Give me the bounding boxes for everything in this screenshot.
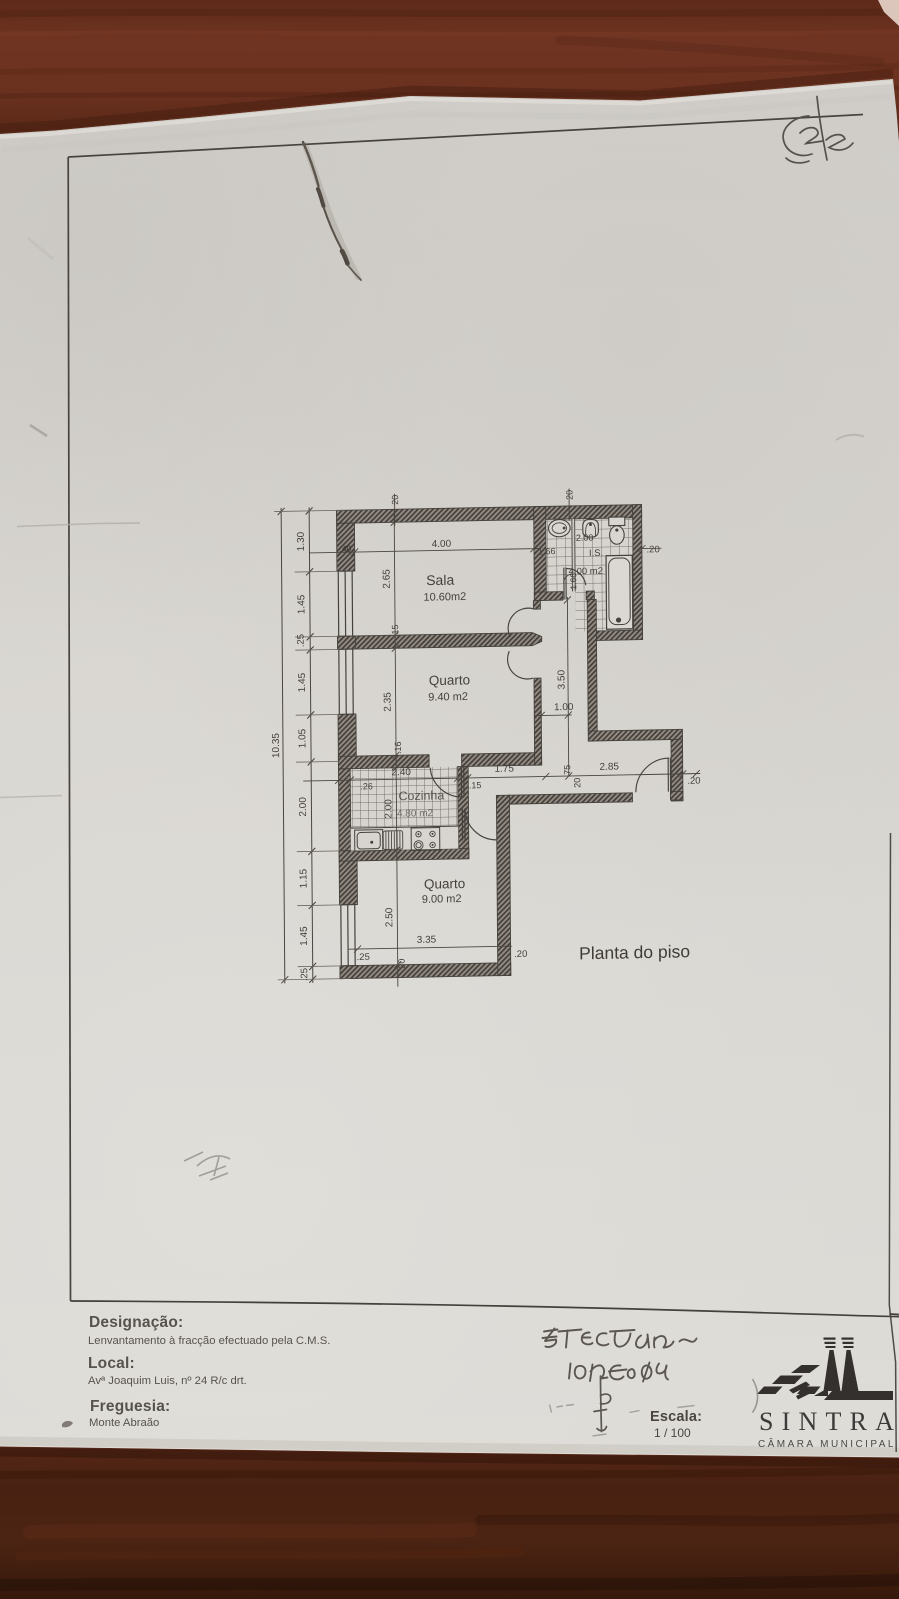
svg-text:.20: .20 <box>514 949 527 960</box>
svg-text:2.35: 2.35 <box>383 692 394 712</box>
svg-text:.20: .20 <box>646 544 659 555</box>
svg-text:I.S.: I.S. <box>589 548 603 559</box>
svg-text:.40: .40 <box>339 544 351 554</box>
svg-text:1.45: 1.45 <box>297 672 308 692</box>
svg-text:.75: .75 <box>562 765 572 778</box>
svg-text:4.80 m2: 4.80 m2 <box>397 808 434 820</box>
svg-text:3.35: 3.35 <box>417 935 437 946</box>
svg-text:9.00 m2: 9.00 m2 <box>422 893 462 906</box>
svg-text:SINTRA: SINTRA <box>759 1407 899 1436</box>
svg-text:2.00: 2.00 <box>576 533 594 543</box>
svg-text:Escala:: Escala: <box>650 1409 702 1425</box>
svg-text:.25: .25 <box>296 634 307 647</box>
svg-text:1.66: 1.66 <box>568 573 578 590</box>
svg-text:20: 20 <box>572 778 582 788</box>
svg-text:20: 20 <box>565 490 575 500</box>
svg-text:1.45: 1.45 <box>299 926 310 946</box>
svg-text:1.05: 1.05 <box>297 728 308 748</box>
svg-text:3.50: 3.50 <box>556 669 567 689</box>
svg-text:2.85: 2.85 <box>599 762 619 773</box>
svg-text:4.00: 4.00 <box>432 539 452 550</box>
svg-text:Designação:: Designação: <box>89 1314 183 1331</box>
svg-text:.26: .26 <box>360 781 373 791</box>
svg-text:20: 20 <box>397 959 407 969</box>
svg-text:1.15: 1.15 <box>298 868 309 888</box>
svg-text:Quarto: Quarto <box>424 876 465 892</box>
svg-text:CÂMARA MUNICIPAL: CÂMARA MUNICIPAL <box>758 1437 896 1450</box>
svg-text:.20: .20 <box>687 776 700 787</box>
svg-text:.16: .16 <box>393 741 403 754</box>
svg-text:Sala: Sala <box>426 572 454 589</box>
svg-text:.15: .15 <box>469 780 482 790</box>
svg-text:.25: .25 <box>357 952 370 963</box>
svg-text:.25: .25 <box>299 968 310 981</box>
svg-text:1.66: 1.66 <box>538 546 556 556</box>
svg-text:1.45: 1.45 <box>296 594 307 614</box>
svg-text:1.75: 1.75 <box>494 764 514 775</box>
svg-text:1.30: 1.30 <box>296 531 307 551</box>
svg-text:9.40 m2: 9.40 m2 <box>428 691 468 704</box>
svg-text:2.50: 2.50 <box>384 907 395 927</box>
svg-text:2.65: 2.65 <box>382 569 393 589</box>
svg-text:1 / 100: 1 / 100 <box>654 1426 691 1440</box>
svg-text:Quarto: Quarto <box>429 672 470 688</box>
svg-text:10.60m2: 10.60m2 <box>423 591 466 604</box>
svg-text:2.40: 2.40 <box>391 767 411 778</box>
svg-text:10.35: 10.35 <box>271 733 282 759</box>
svg-text:Monte Abraão: Monte Abraão <box>89 1417 159 1429</box>
svg-text:Freguesia:: Freguesia: <box>90 1398 170 1415</box>
svg-text:.15: .15 <box>390 624 400 637</box>
svg-text:Lenvantamento à fracção efectu: Lenvantamento à fracção efectuado pela C… <box>88 1335 330 1347</box>
svg-text:Local:: Local: <box>88 1355 135 1372</box>
svg-text:20: 20 <box>390 495 400 505</box>
svg-text:Planta do piso: Planta do piso <box>579 941 690 963</box>
svg-text:2.00: 2.00 <box>383 799 394 819</box>
svg-text:2.00: 2.00 <box>298 797 309 817</box>
svg-text:Avª Joaquim Luis, nº 24 R/c dr: Avª Joaquim Luis, nº 24 R/c drt. <box>88 1375 247 1387</box>
svg-text:1.00: 1.00 <box>554 702 574 713</box>
svg-text:Cozinha: Cozinha <box>398 788 444 803</box>
